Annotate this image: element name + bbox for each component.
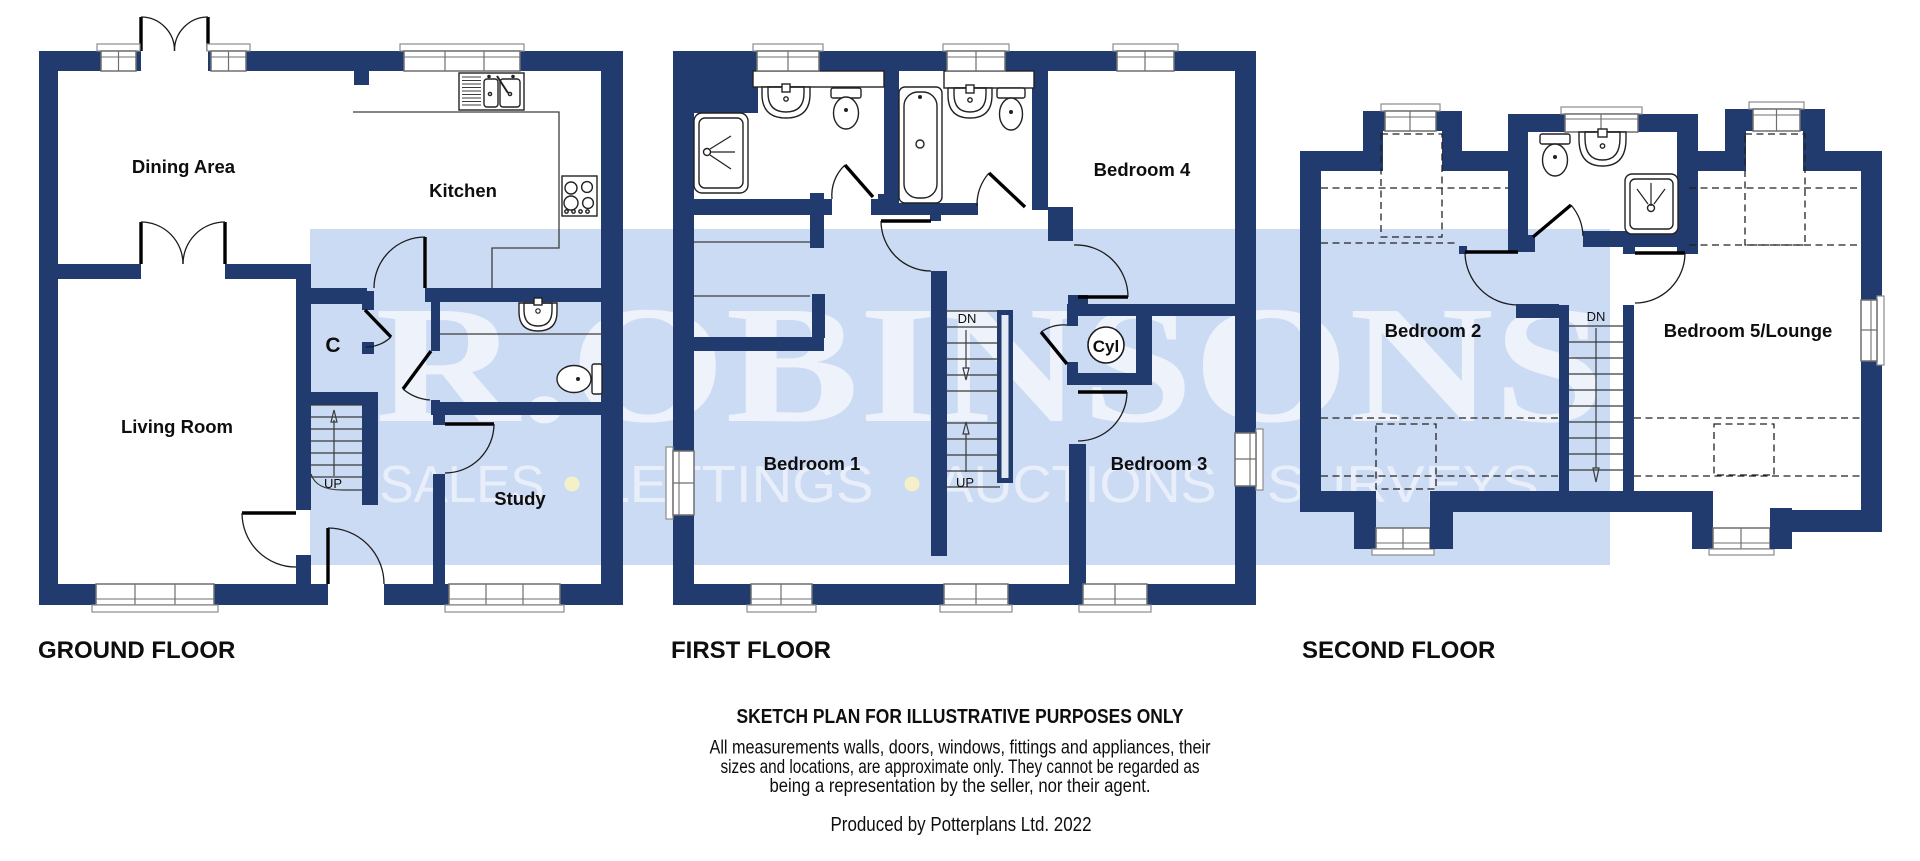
svg-text:UP: UP <box>324 476 342 491</box>
svg-text:GROUND FLOOR: GROUND FLOOR <box>38 637 235 664</box>
svg-text:Bedroom 3: Bedroom 3 <box>1111 453 1208 474</box>
svg-text:SECOND FLOOR: SECOND FLOOR <box>1302 637 1495 664</box>
svg-text:Bedroom 2: Bedroom 2 <box>1385 320 1482 341</box>
svg-text:DN: DN <box>958 311 977 326</box>
svg-text:being a representation by the: being a representation by the seller, no… <box>770 776 1151 797</box>
svg-text:Produced by Potterplans Ltd. 2: Produced by Potterplans Ltd. 2022 <box>831 814 1092 836</box>
svg-text:Cyl: Cyl <box>1093 337 1119 356</box>
svg-text:Dining Area: Dining Area <box>132 156 236 177</box>
svg-text:sizes and locations, are appro: sizes and locations, are approximate onl… <box>721 757 1200 778</box>
svg-text:C: C <box>325 334 340 357</box>
svg-text:Bedroom 1: Bedroom 1 <box>764 453 861 474</box>
svg-text:Living Room: Living Room <box>121 416 233 437</box>
svg-text:DN: DN <box>1587 309 1606 324</box>
svg-text:UP: UP <box>956 475 974 490</box>
svg-text:Kitchen: Kitchen <box>429 180 497 201</box>
svg-text:FIRST FLOOR: FIRST FLOOR <box>671 637 831 664</box>
svg-text:Bedroom 5/Lounge: Bedroom 5/Lounge <box>1664 320 1833 341</box>
svg-text:SKETCH PLAN FOR ILLUSTRATIVE P: SKETCH PLAN FOR ILLUSTRATIVE PURPOSES ON… <box>737 706 1185 728</box>
svg-text:All measurements walls, doors,: All measurements walls, doors, windows, … <box>710 738 1212 759</box>
svg-text:Study: Study <box>494 488 546 509</box>
svg-text:Bedroom 4: Bedroom 4 <box>1094 159 1191 180</box>
